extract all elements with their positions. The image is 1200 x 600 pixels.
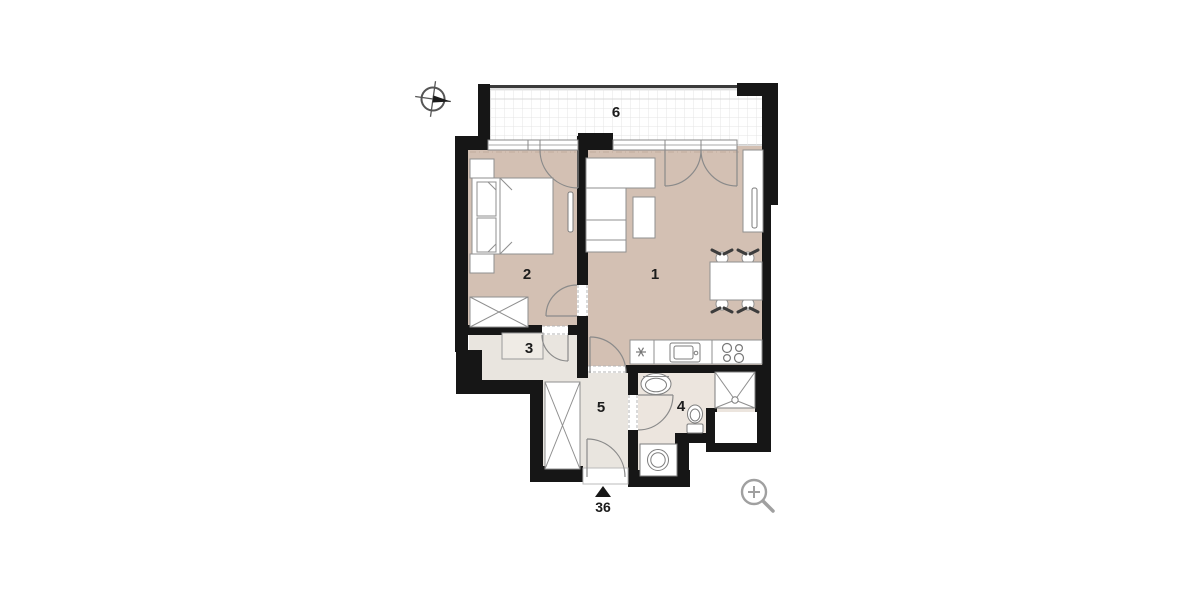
radiator bbox=[752, 188, 757, 228]
floor-plan-canvas: 1 2 3 4 5 6 36 bbox=[0, 0, 1200, 600]
north-compass-icon bbox=[413, 79, 454, 120]
hall-wardrobe bbox=[545, 382, 580, 469]
kitchen bbox=[630, 340, 762, 364]
entrance-arrow-icon bbox=[595, 486, 611, 497]
balcony-tiles bbox=[490, 89, 763, 145]
label-living-room: 1 bbox=[651, 266, 659, 283]
balcony-railing bbox=[478, 85, 778, 88]
label-bathroom: 4 bbox=[677, 398, 686, 415]
entrance-marker: 36 bbox=[595, 486, 611, 515]
shower bbox=[715, 372, 755, 408]
washing-machine bbox=[640, 444, 677, 476]
entrance-number: 36 bbox=[595, 499, 611, 515]
sofa-section bbox=[586, 158, 655, 188]
zoom-in-icon[interactable] bbox=[742, 480, 773, 511]
nightstand bbox=[470, 159, 494, 178]
coffee-table bbox=[633, 197, 655, 238]
floor-plan-page: 1 2 3 4 5 6 36 bbox=[0, 0, 1200, 600]
toilet bbox=[687, 405, 703, 433]
label-bedroom: 2 bbox=[523, 266, 531, 283]
label-closet: 3 bbox=[525, 340, 533, 357]
dining-table bbox=[710, 262, 762, 300]
entry-threshold bbox=[583, 468, 628, 484]
label-balcony: 6 bbox=[612, 104, 620, 121]
radiator bbox=[568, 192, 573, 232]
nightstand bbox=[470, 254, 494, 273]
windows bbox=[488, 140, 737, 150]
closet-shelf bbox=[502, 333, 543, 359]
label-hall: 5 bbox=[597, 399, 605, 416]
bathroom-niche bbox=[715, 412, 757, 443]
faucet bbox=[694, 351, 698, 355]
